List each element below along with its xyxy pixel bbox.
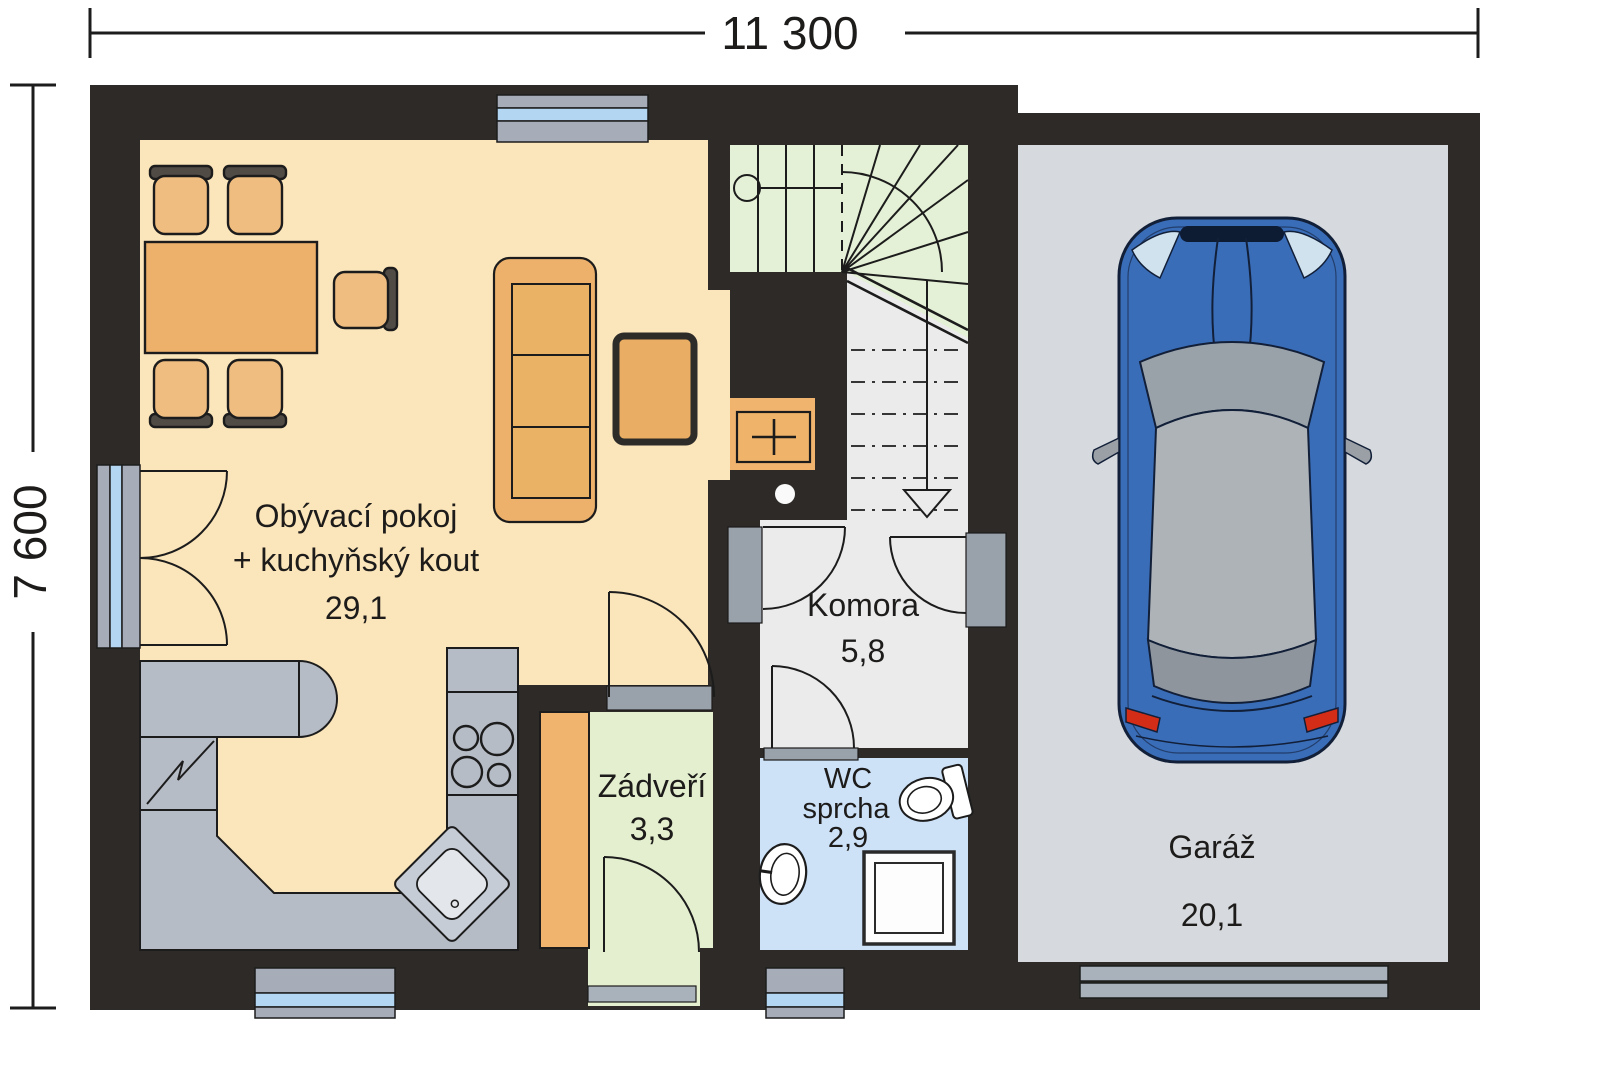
window-bottom-wc (766, 968, 844, 1018)
sofa (494, 258, 596, 522)
chair (154, 360, 208, 418)
living-label-line2: + kuchyňský kout (233, 542, 479, 578)
heater-unit (730, 398, 815, 470)
komora-label: Komora (807, 587, 919, 623)
car-roof (1148, 410, 1316, 658)
shower (864, 852, 954, 944)
komora-left-door-panel (728, 527, 762, 623)
wc-label-line1: WC (824, 763, 872, 795)
chair (228, 176, 282, 234)
floor-plan-page: 11 300 7 600 (0, 0, 1600, 1070)
window-bottom-living (255, 968, 395, 1018)
wall-post-dot (775, 484, 795, 504)
chair (334, 272, 388, 328)
komora-area: 5,8 (841, 633, 885, 669)
zadveri-label: Zádveří (598, 768, 707, 804)
garaz-label: Garáž (1168, 829, 1255, 865)
dimension-left-label: 7 600 (4, 484, 56, 599)
wc-label-line2: sprcha (802, 793, 890, 825)
wc-door-threshold (764, 748, 858, 760)
floor-plan-svg: 11 300 7 600 (0, 0, 1600, 1070)
garaz-area: 20,1 (1181, 897, 1243, 933)
car-grille (1180, 226, 1284, 242)
entrance-door-leaf (588, 986, 696, 1002)
window-top (497, 95, 648, 142)
kitchen-counter-bar (140, 661, 337, 737)
chair (154, 176, 208, 234)
zadveri-top-door-threshold (607, 686, 712, 710)
wardrobe (540, 712, 589, 948)
dimension-top-label: 11 300 (721, 7, 858, 59)
chair (228, 360, 282, 418)
car (1093, 218, 1372, 762)
living-label-line1: Obývací pokoj (255, 498, 458, 534)
living-label-area: 29,1 (325, 590, 387, 626)
zadveri-area: 3,3 (630, 811, 674, 847)
room-living-floor-notch (708, 290, 730, 480)
dining-table (145, 242, 317, 353)
coffee-table (616, 336, 694, 442)
wc-area: 2,9 (828, 822, 868, 854)
garage-access-door-panel (966, 533, 1006, 627)
window-left-french-door (97, 465, 140, 648)
